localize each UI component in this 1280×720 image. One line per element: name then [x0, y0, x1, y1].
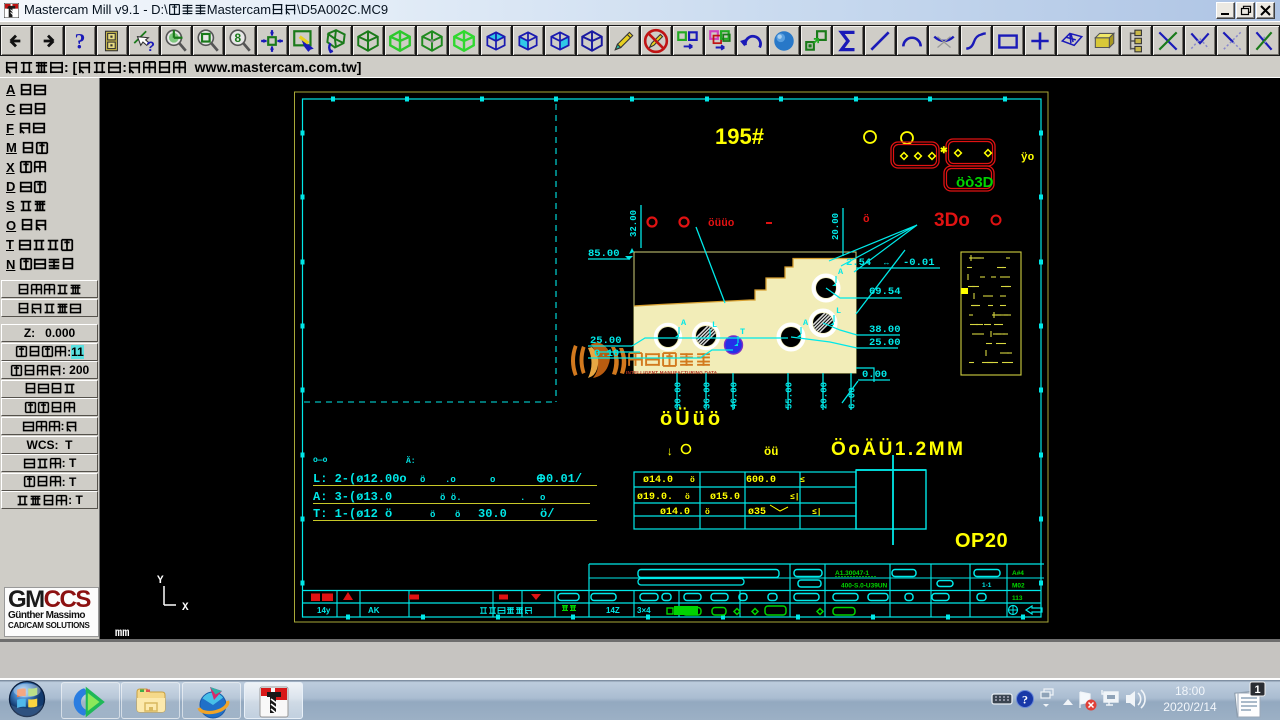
svg-text:o: o: [490, 475, 495, 485]
svg-text:öü: öü: [764, 445, 778, 459]
svg-text:ÿo: ÿo: [1021, 152, 1035, 164]
svg-text:69.54: 69.54: [869, 286, 901, 298]
svg-text:2.54: 2.54: [846, 257, 871, 269]
svg-text:25.00: 25.00: [869, 337, 901, 349]
svg-text:195#: 195#: [715, 124, 764, 149]
svg-text:3×4: 3×4: [637, 606, 651, 615]
svg-text:32.00: 32.00: [629, 210, 639, 237]
svg-text:14Z: 14Z: [606, 606, 620, 615]
svg-text:T: T: [740, 327, 745, 337]
svg-text:55.00: 55.00: [785, 382, 795, 409]
svg-text:3Do: 3Do: [934, 210, 970, 231]
svg-text:?: ?: [75, 30, 86, 54]
svg-text:ö: ö: [685, 493, 690, 502]
svg-text:8: 8: [235, 31, 242, 45]
svg-text:ö: ö: [420, 475, 425, 485]
svg-text:M02: M02: [1012, 583, 1025, 590]
svg-text:o—o: o—o: [313, 456, 328, 465]
svg-text:ÖoÄÜ1.2MM: ÖoÄÜ1.2MM: [831, 439, 965, 460]
svg-text:6.00: 6.00: [848, 387, 858, 409]
svg-text:ø19.0.: ø19.0.: [637, 492, 673, 503]
svg-text:ø15.0: ø15.0: [710, 492, 740, 503]
svg-text:ö: ö: [690, 476, 695, 485]
svg-text:25.00: 25.00: [590, 335, 622, 347]
svg-text:ö: ö: [863, 214, 870, 226]
svg-text:600.0: 600.0: [746, 475, 776, 486]
svg-text:ö/: ö/: [540, 507, 554, 521]
svg-text:30.00: 30.00: [674, 382, 684, 409]
svg-text:✱: ✱: [940, 146, 948, 156]
svg-text:ö: ö: [455, 510, 460, 520]
svg-text:ø35: ø35: [748, 507, 766, 518]
svg-text:öüüo: öüüo: [708, 218, 735, 230]
svg-text:A1.30047-1: A1.30047-1: [835, 570, 869, 577]
svg-text:L: 2-(ø12.00o: L: 2-(ø12.00o: [313, 472, 407, 486]
svg-text:o: o: [540, 493, 545, 503]
svg-text:L: L: [712, 320, 717, 330]
svg-text:öò3D: öò3D: [956, 174, 994, 191]
svg-text:ö: ö: [430, 510, 435, 520]
svg-text:0.00: 0.00: [862, 369, 887, 381]
svg-text:30.0: 30.0: [478, 507, 507, 521]
svg-text:A#4: A#4: [1012, 570, 1024, 577]
svg-text:Ä:: Ä:: [406, 457, 416, 466]
svg-text:AK: AK: [368, 606, 380, 615]
svg-text:14y: 14y: [317, 606, 331, 615]
svg-text:INTELLIGENT MANUFACTURING DATA: INTELLIGENT MANUFACTURING DATA: [626, 370, 718, 375]
svg-text:↔: ↔: [884, 259, 889, 268]
svg-text:⊕0.01/: ⊕0.01/: [536, 472, 582, 486]
svg-text:1-1: 1-1: [982, 582, 992, 589]
svg-text:.: .: [520, 493, 525, 503]
svg-text:ø14.0: ø14.0: [660, 507, 690, 518]
svg-text:ö ö.: ö ö.: [440, 493, 462, 503]
svg-text:85.00: 85.00: [588, 248, 620, 260]
svg-text:36.00: 36.00: [703, 382, 713, 409]
svg-text:Y: Y: [157, 575, 164, 587]
svg-text:öÜüö: öÜüö: [660, 407, 723, 430]
svg-text:38.00: 38.00: [869, 324, 901, 336]
svg-text:≤: ≤: [800, 476, 805, 485]
svg-text:?: ?: [146, 38, 155, 54]
svg-text:OP20: OP20: [955, 530, 1008, 552]
svg-text:.o: .o: [445, 475, 456, 485]
svg-text:20.00: 20.00: [820, 382, 830, 409]
svg-text:46.00: 46.00: [730, 382, 740, 409]
svg-text:T: 1-(ø12 ö: T: 1-(ø12 ö: [313, 507, 392, 521]
svg-text:20.00: 20.00: [831, 213, 841, 240]
svg-text:↓: ↓: [666, 445, 673, 459]
svg-text:≤|: ≤|: [812, 508, 822, 517]
svg-text:1: 1: [1254, 684, 1260, 696]
svg-text:400-S.0-U39UN: 400-S.0-U39UN: [841, 583, 888, 590]
svg-text:L: L: [836, 306, 841, 316]
svg-text:?: ?: [1022, 693, 1028, 707]
svg-text:A: A: [681, 318, 687, 328]
svg-text:A: 3-(ø13.0: A: 3-(ø13.0: [313, 490, 392, 504]
svg-text:A: A: [838, 267, 844, 277]
svg-text:-0.01: -0.01: [903, 257, 935, 269]
svg-text:ø14.0: ø14.0: [643, 475, 673, 486]
svg-text:mm: mm: [115, 626, 129, 639]
svg-text:A: A: [803, 318, 809, 328]
svg-text:X: X: [182, 602, 189, 614]
svg-text:113: 113: [1012, 595, 1023, 602]
svg-text:ö: ö: [705, 508, 710, 517]
svg-text:≤|: ≤|: [790, 493, 800, 502]
